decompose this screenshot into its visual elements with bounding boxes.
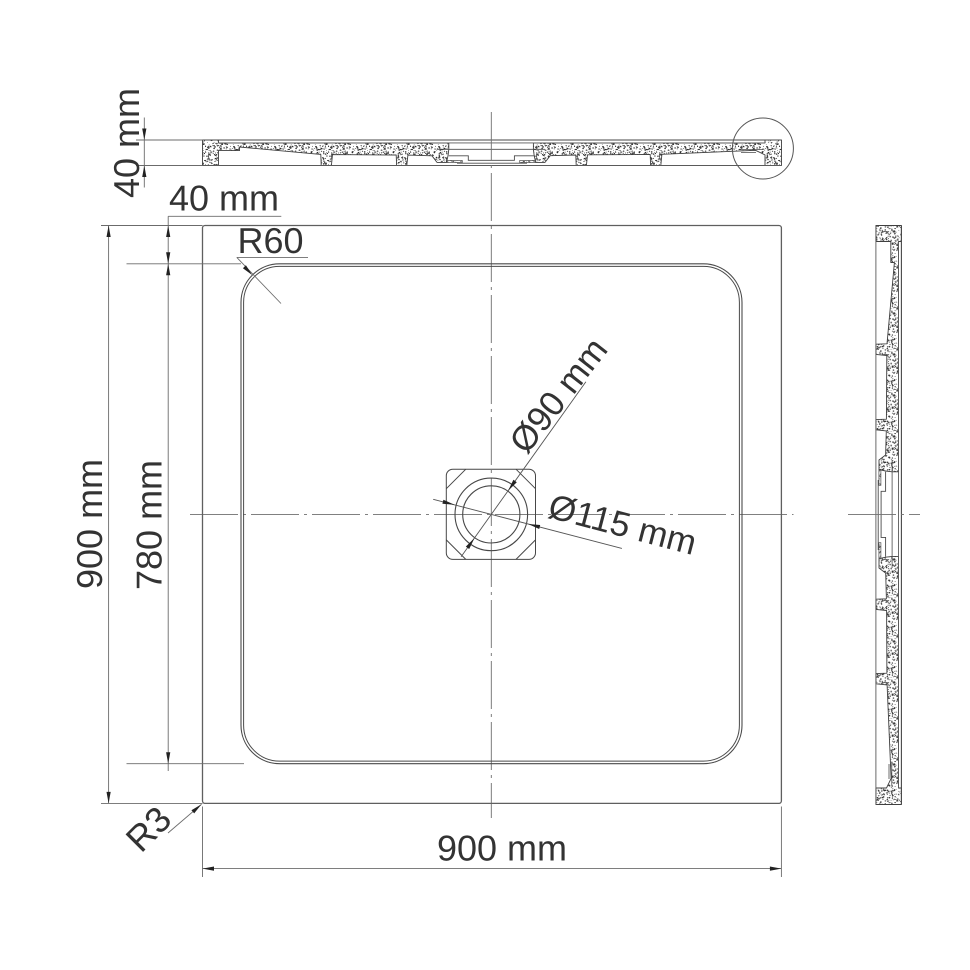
svg-text:40 mm: 40 mm (106, 88, 147, 198)
svg-text:40 mm: 40 mm (169, 178, 279, 219)
svg-text:900 mm: 900 mm (437, 828, 567, 869)
svg-text:R60: R60 (238, 220, 304, 261)
svg-text:900 mm: 900 mm (69, 459, 110, 589)
svg-text:780 mm: 780 mm (129, 460, 170, 590)
